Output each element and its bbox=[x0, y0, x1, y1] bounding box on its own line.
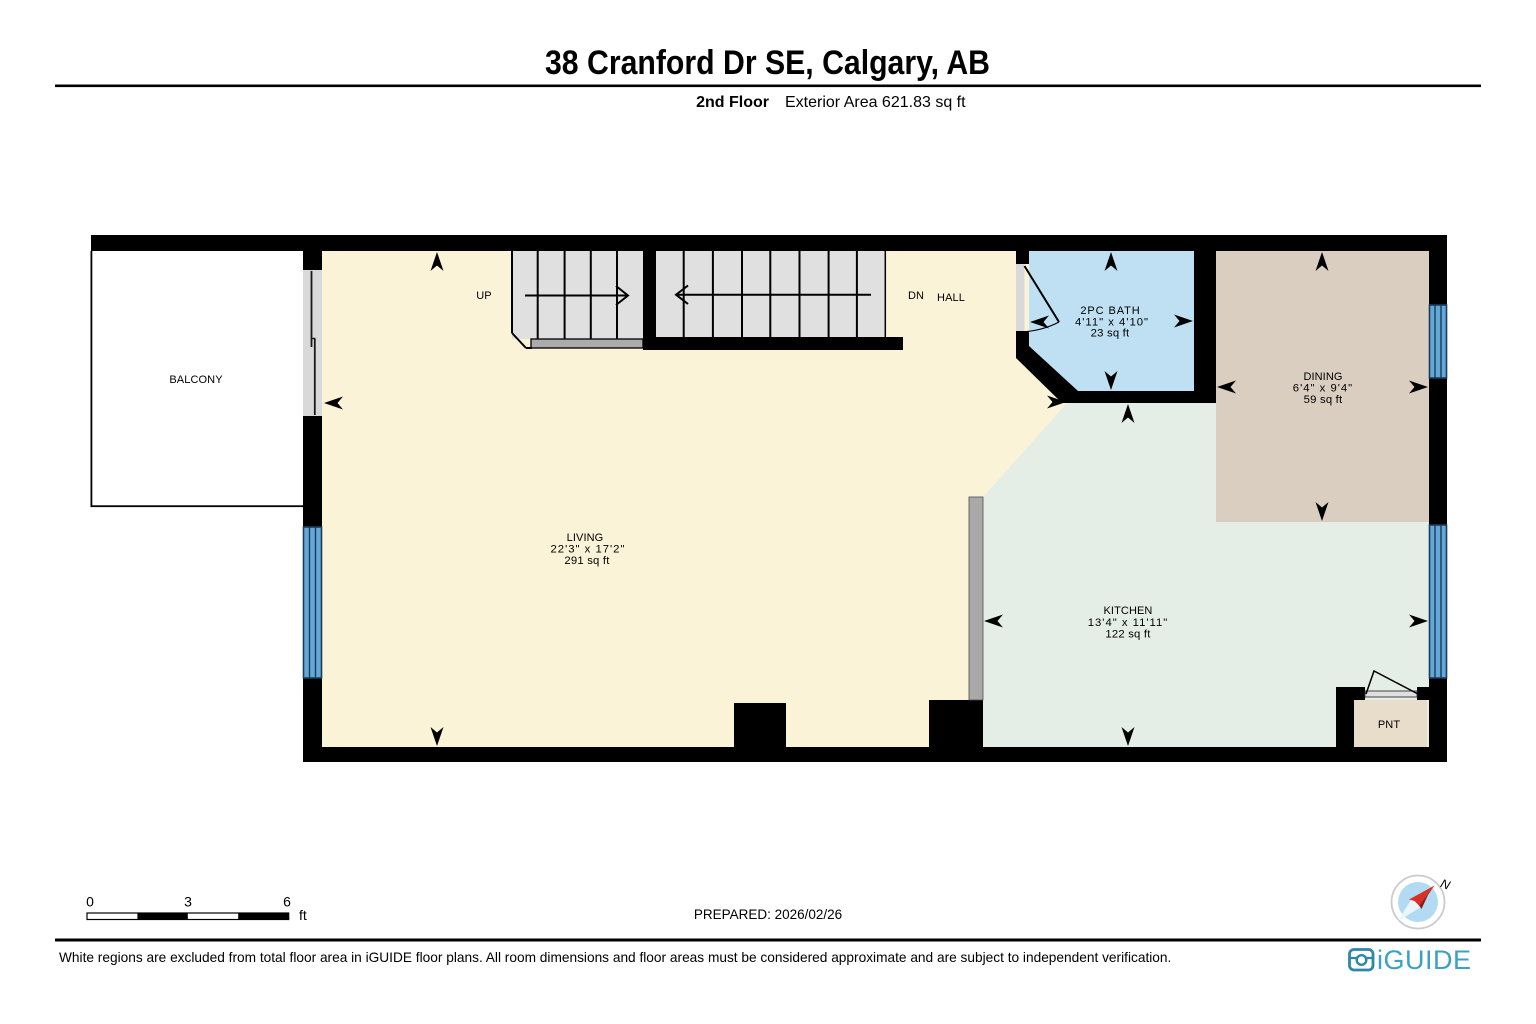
svg-text:DN: DN bbox=[908, 290, 924, 302]
svg-text:22'3" x 17'2": 22'3" x 17'2" bbox=[551, 544, 626, 556]
svg-text:13'4" x 11'11": 13'4" x 11'11" bbox=[1088, 617, 1169, 629]
svg-text:Exterior Area 621.83 sq ft: Exterior Area 621.83 sq ft bbox=[785, 94, 966, 111]
svg-text:iGUIDE: iGUIDE bbox=[1377, 945, 1472, 975]
svg-text:PNT: PNT bbox=[1378, 719, 1400, 731]
svg-text:2nd Floor: 2nd Floor bbox=[696, 94, 769, 111]
svg-text:UP: UP bbox=[476, 290, 491, 302]
svg-text:6: 6 bbox=[283, 894, 291, 910]
svg-text:BALCONY: BALCONY bbox=[169, 374, 223, 386]
svg-text:ft: ft bbox=[299, 907, 307, 923]
svg-text:122 sq ft: 122 sq ft bbox=[1105, 629, 1151, 641]
svg-text:3: 3 bbox=[184, 894, 192, 910]
svg-text:59 sq ft: 59 sq ft bbox=[1304, 394, 1343, 406]
svg-text:KITCHEN: KITCHEN bbox=[1104, 605, 1153, 617]
svg-text:38 Cranford Dr SE, Calgary, AB: 38 Cranford Dr SE, Calgary, AB bbox=[545, 44, 990, 82]
svg-text:0: 0 bbox=[86, 894, 94, 910]
svg-text:2PC BATH: 2PC BATH bbox=[1080, 305, 1140, 317]
svg-text:HALL: HALL bbox=[937, 292, 965, 304]
svg-text:DINING: DINING bbox=[1303, 371, 1342, 383]
svg-text:PREPARED: 2026/02/26: PREPARED: 2026/02/26 bbox=[694, 907, 842, 922]
svg-text:23 sq ft: 23 sq ft bbox=[1091, 328, 1130, 340]
svg-text:291 sq ft: 291 sq ft bbox=[564, 555, 610, 567]
svg-text:6'4" x 9'4": 6'4" x 9'4" bbox=[1293, 383, 1353, 395]
svg-text:White regions are excluded fro: White regions are excluded from total fl… bbox=[59, 950, 1171, 965]
svg-text:LIVING: LIVING bbox=[567, 532, 604, 544]
